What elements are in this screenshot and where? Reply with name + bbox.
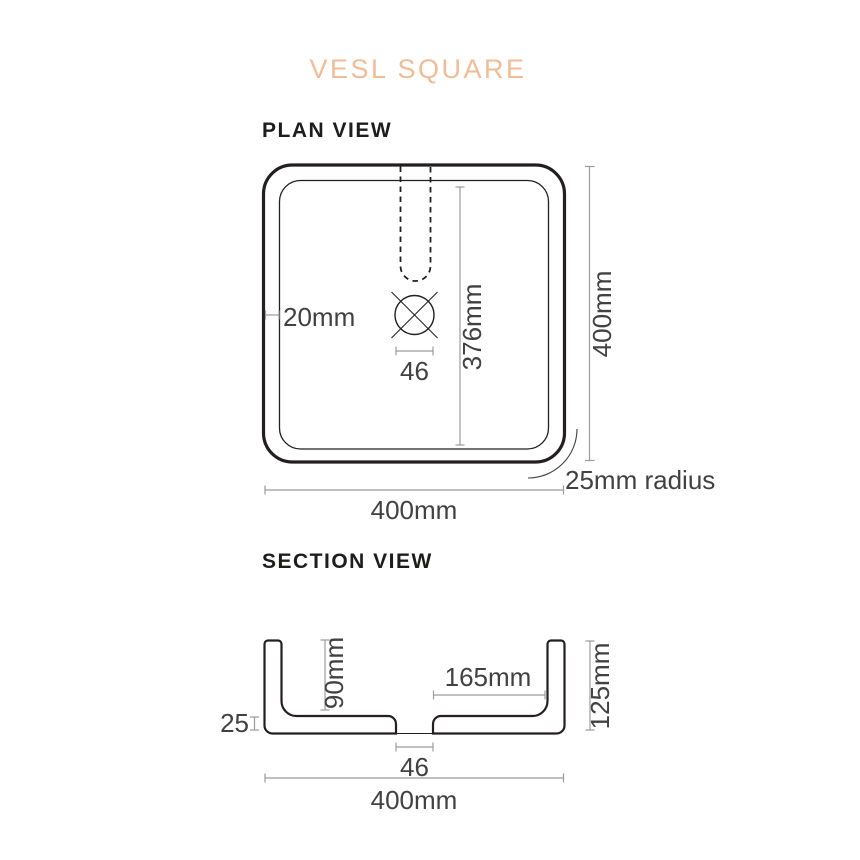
product-title: VESL SQUARE	[309, 54, 526, 84]
plan-label-wall-thickness: 20mm	[283, 302, 355, 332]
section-label-drain-to-wall: 165mm	[445, 662, 532, 692]
section-label-overall-width: 400mm	[371, 785, 458, 815]
section-label-internal-depth: 90mm	[319, 637, 349, 709]
section-label-overall-height: 125mm	[585, 643, 615, 730]
plan-dim-overall-depth: 400mm	[585, 167, 617, 461]
plan-label-overall-width: 400mm	[371, 495, 458, 525]
plan-label-corner-radius: 25mm radius	[565, 465, 715, 495]
plan-view-heading: PLAN VIEW	[262, 119, 392, 142]
plan-dim-drain-width: 46	[396, 347, 433, 387]
section-view-heading: SECTION VIEW	[262, 550, 433, 573]
section-dim-drain-width: 46	[396, 743, 433, 783]
technical-drawing-canvas: VESL SQUARE PLAN VIEW SECTION VIEW 20mm …	[0, 0, 860, 860]
plan-tap-cutout-dashed-outline	[401, 167, 431, 282]
section-dim-base-thickness: 25	[220, 708, 259, 738]
section-dim-overall-height: 125mm	[585, 641, 615, 730]
plan-label-overall-depth: 400mm	[587, 271, 617, 358]
section-dim-drain-to-wall: 165mm	[434, 662, 546, 700]
section-label-base-thickness: 25	[220, 708, 249, 738]
plan-dim-corner-radius: 25mm radius	[528, 429, 715, 495]
plan-label-internal-length: 376mm	[457, 284, 487, 371]
section-dim-internal-depth: 90mm	[319, 637, 349, 710]
plan-label-drain-width: 46	[400, 356, 429, 386]
plan-dim-overall-width: 400mm	[265, 486, 564, 526]
plan-dim-internal-length: 376mm	[456, 187, 488, 445]
